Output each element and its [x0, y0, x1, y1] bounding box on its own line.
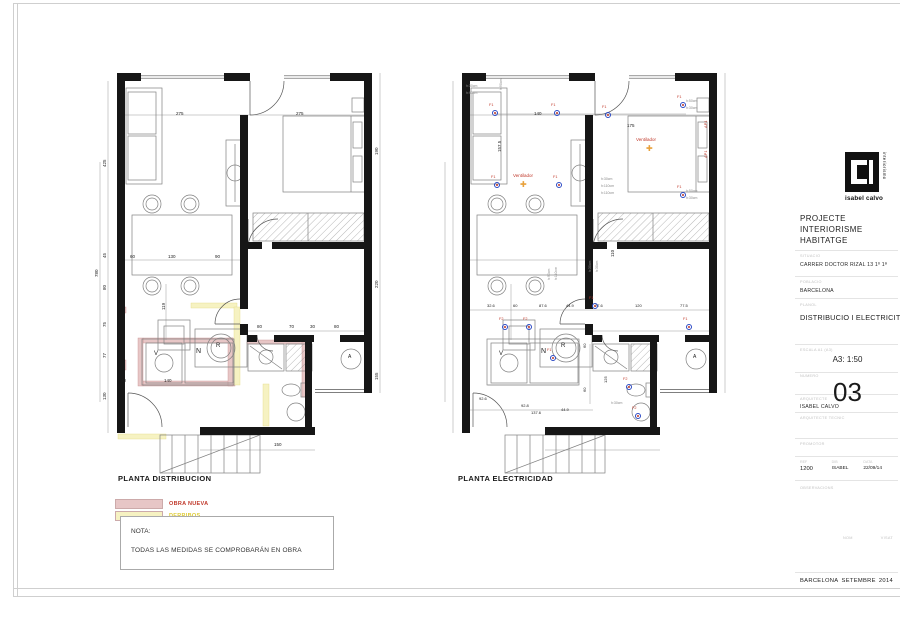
socket-symbol-icon: [635, 413, 641, 419]
plan-label: F1: [489, 104, 493, 108]
socket-symbol-icon: [550, 355, 556, 361]
footer-year: 2014: [879, 578, 893, 584]
plan-label: 90: [215, 255, 220, 260]
plan-label: h:110cm: [555, 267, 559, 280]
frame-left-line-inner: [17, 3, 18, 597]
plan-label: h:30cm: [466, 85, 477, 89]
plan-label: AP1: [704, 120, 708, 128]
plan-label: 32.6: [487, 304, 495, 308]
plan-label: 60: [513, 304, 517, 308]
field-poblacio-value: BARCELONA: [800, 288, 900, 294]
project-title: PROJECTE INTERIORISME HABITATGE: [800, 214, 895, 246]
note-box: NOTA: TODAS LAS MEDIDAS SE COMPROBARÁN E…: [120, 516, 334, 570]
socket-symbol-icon: [605, 112, 611, 118]
field-arquitecte-tecnic: ARQUITECTE TECNIC: [800, 416, 860, 421]
plan-label: h:30cm: [601, 178, 612, 182]
field-ref-value: 1200: [800, 466, 832, 472]
socket-symbol-icon: [554, 110, 560, 116]
plan-label: 70: [289, 325, 294, 330]
plan-label: 190: [375, 147, 380, 155]
frame-bottom-line-outer: [13, 596, 900, 597]
plan-label: 130: [168, 255, 176, 260]
field-escala-label: ESCALA A1 (A3): [800, 348, 895, 353]
field-observacions: OBSERVACIONS: [800, 486, 900, 491]
field-ref: REF 1200: [800, 460, 832, 472]
field-promotor-label: PROMOTOR: [800, 442, 900, 447]
plan-label: 60: [130, 255, 135, 260]
plan-label: h:90cm: [500, 79, 504, 90]
plan-label: AP1: [704, 150, 708, 158]
plan-label: 140: [164, 379, 172, 384]
distribution-plan-annotations: 2752754257804580757713019022015560130901…: [58, 52, 398, 482]
field-poblacio: POBLACIO BARCELONA: [800, 280, 900, 294]
field-situacio-label: SITUACIO: [800, 254, 900, 259]
plan-label: 155: [375, 372, 380, 380]
footer-month: SETEMBRE: [842, 578, 876, 584]
field-data-label: DATA: [863, 460, 895, 464]
plan-label: 780: [95, 269, 100, 277]
plan-label: F1: [683, 318, 687, 322]
frame-top-line: [13, 3, 900, 4]
plan-label: 87.6: [539, 304, 547, 308]
field-dib: DIB ISABEL: [832, 460, 864, 472]
field-observacions-label: OBSERVACIONS: [800, 486, 900, 491]
logo: interiorismo isabel calvo: [845, 152, 895, 202]
plan-label: 45: [103, 253, 108, 258]
plan-label: R: [216, 343, 220, 349]
plan-label: N: [196, 348, 201, 355]
plan-label: 275: [176, 112, 184, 117]
plan-label: 119: [162, 303, 167, 310]
plan-label: R: [561, 343, 565, 349]
field-planol: PLANOL DISTRIBUCIO I ELECTRICITAT: [800, 303, 900, 322]
field-arquitecte-tecnic-label: ARQUITECTE TECNIC: [800, 416, 860, 421]
plan-label: 175: [627, 124, 635, 129]
plan-label: F1: [551, 104, 555, 108]
socket-symbol-icon: [492, 110, 498, 116]
socket-symbol-icon: [592, 303, 598, 309]
plan-label: 157.5: [498, 141, 503, 152]
field-nom-label: NOM: [843, 536, 853, 541]
field-arquitecte-value: ISABEL CALVO: [800, 404, 900, 410]
plan-label: F2: [499, 318, 503, 322]
logo-name: isabel calvo: [845, 195, 895, 202]
field-situacio-value: CARRER DOCTOR RIZAL 13 1º 1ª: [800, 262, 900, 268]
plan-label: 30: [310, 325, 315, 330]
plan-label: N: [541, 348, 546, 355]
field-ref-dib-data: REF 1200 DIB ISABEL DATA 22/09/14: [800, 460, 895, 472]
fan-symbol-icon: ✚: [646, 145, 653, 153]
socket-symbol-icon: [686, 324, 692, 330]
floor-plan-distribution: 2752754257804580757713019022015560130901…: [58, 52, 398, 482]
socket-symbol-icon: [626, 384, 632, 390]
field-arquitecte: ARQUITECTE ISABEL CALVO: [800, 397, 900, 410]
field-nom-visat: NOM VISAT: [843, 536, 893, 541]
legend-swatch-obra-nueva: [115, 499, 163, 509]
plan-label: 75: [103, 322, 108, 327]
socket-symbol-icon: [556, 182, 562, 188]
plan-label: 425: [103, 159, 108, 167]
plan-label: 200: [586, 166, 591, 174]
field-poblacio-label: POBLACIO: [800, 280, 900, 285]
field-ref-label: REF: [800, 460, 832, 464]
plan-label: h:90cm: [548, 269, 552, 280]
plan-label: Ventilador: [636, 138, 656, 143]
title-block-footer: BARCELONA SETEMBRE 2014: [800, 578, 893, 584]
title-block: interiorismo isabel calvo PROJECTE INTER…: [795, 0, 898, 636]
socket-symbol-icon: [494, 182, 500, 188]
architectural-drawing-sheet: { "titleblock": { "logo": {"name": "isab…: [0, 0, 900, 636]
field-situacio: SITUACIO CARRER DOCTOR RIZAL 13 1º 1ª: [800, 254, 900, 268]
footer-city: BARCELONA: [800, 578, 838, 584]
plan-title-electrical: PLANTA ELECTRICIDAD: [458, 474, 553, 483]
isabel-calvo-logo-icon: [845, 152, 881, 194]
frame-bottom-line-inner: [13, 588, 900, 589]
plan-label: F1: [589, 297, 593, 301]
drawing-sheet: 2752754257804580757713019022015560130901…: [0, 0, 900, 636]
field-visat-label: VISAT: [881, 536, 893, 541]
plan-label: h:50cm: [686, 100, 697, 104]
plan-label: V: [499, 351, 503, 357]
field-data-value: 22/09/14: [863, 466, 895, 471]
plan-label: 44.9: [561, 408, 569, 412]
frame-left-line-outer: [13, 3, 14, 597]
plan-label: 80: [257, 325, 262, 330]
note-title: NOTA:: [131, 528, 150, 535]
plan-label: 80: [334, 325, 339, 330]
plan-label: 125: [604, 376, 608, 383]
note-body: TODAS LAS MEDIDAS SE COMPROBARÁN EN OBRA: [131, 547, 302, 554]
field-promotor: PROMOTOR: [800, 442, 900, 447]
field-escala-value: A3: 1:50: [800, 355, 895, 364]
plan-label: V: [154, 351, 158, 357]
legend-item-obra-nueva: OBRA NUEVA: [115, 498, 208, 510]
plan-label: 220: [375, 280, 380, 288]
plan-label: 92.6: [479, 397, 487, 401]
field-escala: ESCALA A1 (A3) A3: 1:50: [800, 348, 895, 364]
plan-label: h:90cm: [466, 92, 477, 96]
plan-label: 130: [103, 392, 108, 400]
plan-label: h:30cm: [611, 402, 622, 406]
plan-label: F1: [602, 106, 606, 110]
plan-label: h:30cm: [686, 197, 697, 201]
plan-label: F2: [623, 378, 627, 382]
socket-symbol-icon: [680, 192, 686, 198]
electrical-plan-annotations: 140175157.520011032.66087.644.977.612077…: [403, 52, 743, 482]
plan-label: F1: [547, 349, 551, 353]
field-data: DATA 22/09/14: [863, 460, 895, 472]
plan-label: 120: [635, 304, 642, 308]
plan-label: h:30cm: [686, 107, 697, 111]
plan-label: 60: [583, 344, 587, 348]
logo-vertical-text: interiorismo: [882, 152, 887, 194]
plan-label: 150: [274, 443, 282, 448]
plan-label: h:50cm: [686, 190, 697, 194]
plan-label: 80: [103, 285, 108, 290]
plan-label: Ventilador: [513, 174, 533, 179]
plan-label: F1: [491, 176, 495, 180]
plan-label: F1: [677, 186, 681, 190]
socket-symbol-icon: [502, 324, 508, 330]
plan-label: 110: [611, 250, 616, 257]
floor-plan-electrical: 140175157.520011032.66087.644.977.612077…: [403, 52, 743, 482]
legend-label-obra-nueva: OBRA NUEVA: [169, 501, 208, 507]
plan-label: F2: [523, 318, 527, 322]
plan-label: 137.6: [531, 411, 541, 415]
field-dib-label: DIB: [832, 460, 864, 464]
socket-symbol-icon: [526, 324, 532, 330]
field-arquitecte-label: ARQUITECTE: [800, 397, 900, 402]
fan-symbol-icon: ✚: [520, 181, 527, 189]
plan-label: A: [348, 355, 351, 360]
plan-label: 92.8: [521, 404, 529, 408]
plan-label: F1: [677, 96, 681, 100]
plan-label: 140: [534, 112, 542, 117]
plan-label: F1: [553, 176, 557, 180]
plan-label: h:30cm: [596, 261, 600, 272]
plan-label: A: [693, 355, 696, 360]
socket-symbol-icon: [680, 102, 686, 108]
plan-label: 77: [103, 353, 108, 358]
field-planol-value: DISTRIBUCIO I ELECTRICITAT: [800, 313, 900, 322]
plan-title-distribution: PLANTA DISTRIBUCION: [118, 474, 211, 483]
plan-label: h:110cm: [601, 185, 614, 189]
plan-label: 275: [296, 112, 304, 117]
plan-label: 40: [121, 379, 126, 384]
plan-label: 77.5: [680, 304, 688, 308]
field-planol-label: PLANOL: [800, 303, 900, 308]
plan-label: 44.9: [566, 304, 574, 308]
plan-label: h:110cm: [601, 192, 614, 196]
plan-label: F2: [632, 407, 636, 411]
field-dib-value: ISABEL: [832, 466, 864, 471]
plan-label: 60: [583, 388, 587, 392]
plan-label: h:30cm: [589, 261, 593, 272]
